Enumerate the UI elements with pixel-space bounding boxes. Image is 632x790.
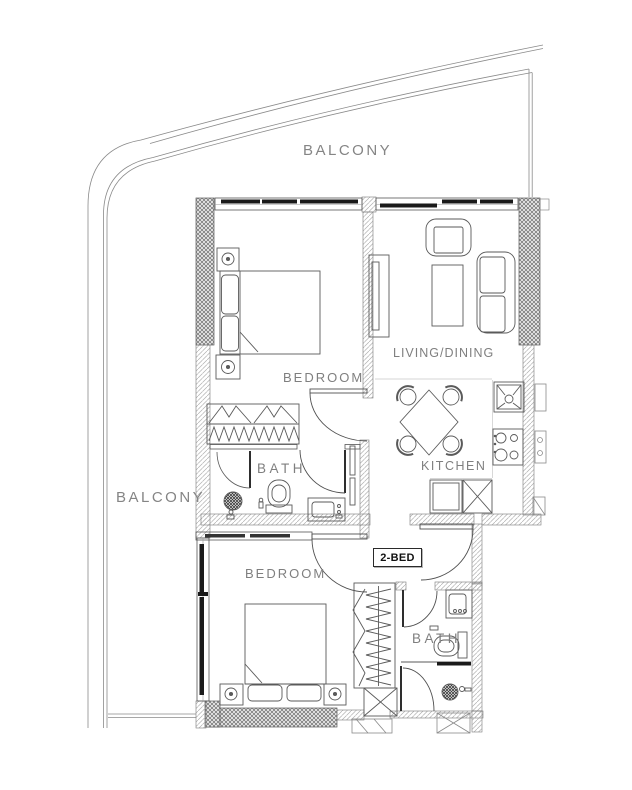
- dining-set: [393, 382, 466, 459]
- bedroom-2-furniture: [220, 604, 346, 705]
- wardrobe-bedroom-2: [353, 583, 397, 716]
- floor-plan-canvas: BALCONY BALCONY BEDROOM LIVING/DINING KI…: [0, 0, 632, 790]
- floor-plan-drawing: [0, 0, 632, 790]
- kitchen-label: KITCHEN: [421, 459, 486, 473]
- unit-type-text: 2-BED: [380, 552, 415, 564]
- bath-1-fixtures: [217, 446, 355, 521]
- bath-1-door-arc: [300, 450, 345, 493]
- bath-1-label: BATH: [257, 461, 306, 476]
- living-dining-label: LIVING/DINING: [393, 346, 494, 360]
- bedroom-1-label: BEDROOM: [283, 370, 364, 385]
- bedroom-1-door-leaf: [310, 389, 367, 393]
- partition-fill: [205, 534, 290, 538]
- armchair: [426, 219, 471, 256]
- toilet: [266, 505, 292, 513]
- entrance-door-arc: [421, 529, 473, 580]
- shower-door-arc: [217, 452, 250, 488]
- shower-2-door-arc: [403, 668, 434, 711]
- sofa: [477, 252, 515, 333]
- floor-drain: [442, 684, 458, 700]
- balcony-top-label: BALCONY: [303, 142, 392, 159]
- shelf: [350, 446, 355, 475]
- bedroom-1-furniture: [216, 248, 320, 379]
- coffee-table: [432, 265, 463, 326]
- bath-2-door-arc: [404, 591, 437, 627]
- bedroom-1-door-arc: [310, 393, 367, 441]
- balcony-left-label: BALCONY: [116, 489, 205, 506]
- bedroom-2-door-leaf: [312, 534, 367, 539]
- unit-type-badge: 2-BED: [373, 548, 422, 567]
- bath-2-label: BATH: [412, 631, 461, 646]
- bedroom-2-label: BEDROOM: [245, 566, 326, 581]
- floor-drain: [224, 492, 242, 510]
- fridge: [430, 480, 462, 513]
- wardrobe-bedroom-1: [207, 404, 299, 444]
- interior-walls: [196, 197, 549, 732]
- living-room-furniture: [369, 219, 515, 337]
